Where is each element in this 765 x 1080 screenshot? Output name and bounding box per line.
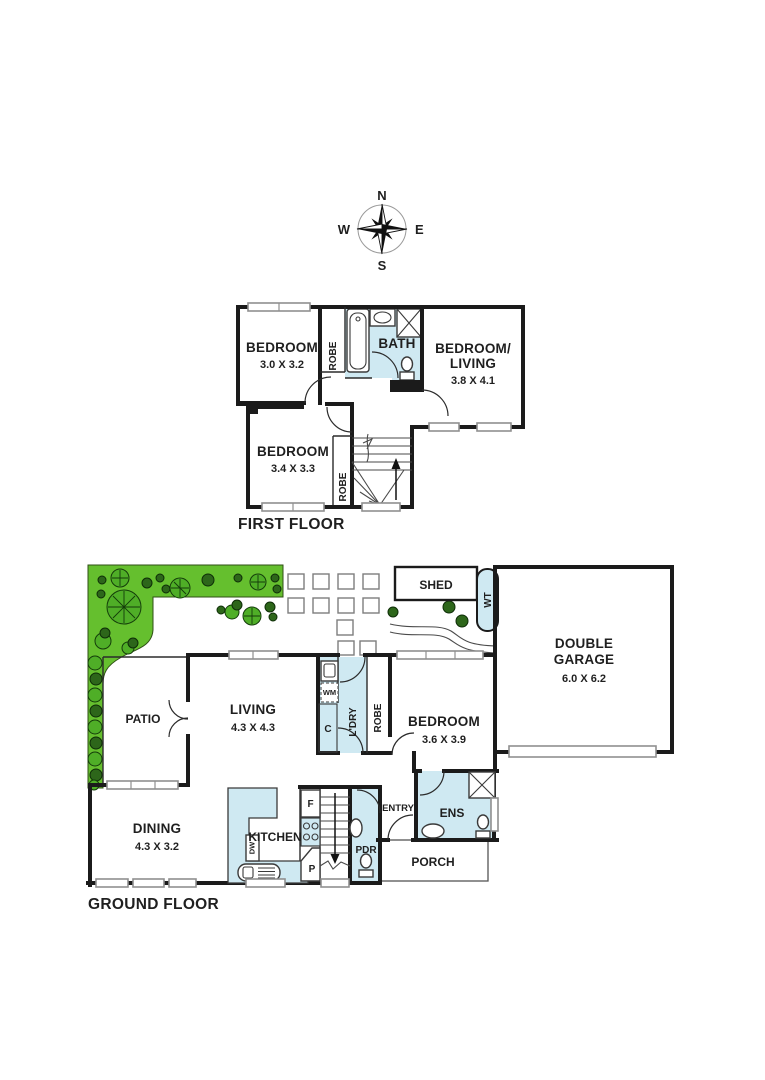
living-label: LIVING (230, 702, 276, 717)
door-arc-patio-right (169, 718, 188, 737)
dining-dims: 4.3 X 3.2 (135, 841, 179, 853)
bedroom1-label: BEDROOM (246, 340, 318, 355)
bedroom-living-dims: 3.8 X 4.1 (451, 375, 495, 387)
robe-label: ROBE (373, 703, 384, 732)
bedroom-dims: 3.6 X 3.9 (422, 734, 466, 746)
paver-stones (288, 574, 379, 655)
living-dims: 4.3 X 4.3 (231, 722, 275, 734)
washing-machine-icon: WM (321, 683, 338, 702)
floorplan-page: N E S W (0, 0, 765, 1080)
bedroom-label: BEDROOM (408, 714, 480, 729)
ens-window (491, 798, 498, 831)
stairs-down-arrow (331, 854, 340, 864)
bathtub-icon (347, 309, 369, 372)
floorplan-image: N E S W (0, 0, 765, 1080)
pdr-toilet-icon (359, 854, 373, 877)
ground-floor-plan: SHED WT DOUBLE GARAGE 6.0 X 6.2 (88, 565, 672, 913)
garage-label-2: GARAGE (554, 652, 614, 667)
door-arc-bedroom-living (422, 390, 448, 416)
bedroom1-dims: 3.0 X 3.2 (260, 359, 304, 371)
fridge-label: F (307, 799, 313, 810)
shower-icon (397, 309, 421, 337)
bedroom2-label: BEDROOM (257, 444, 329, 459)
bedroom-living-label-2: LIVING (450, 356, 496, 371)
laundry-trough-icon (321, 661, 338, 681)
porch-label: PORCH (411, 855, 454, 869)
dining-label: DINING (133, 821, 181, 836)
door-arc-front-door (388, 815, 413, 840)
robe2-label: ROBE (338, 472, 349, 501)
ground-floor-title: GROUND FLOOR (88, 896, 219, 913)
kitchen-label: KITCHEN (248, 830, 301, 844)
ens-shower-icon (469, 772, 495, 798)
toilet-icon (400, 357, 414, 380)
door-arc-patio-left (169, 700, 188, 719)
pdr-label: PDR (355, 845, 377, 856)
first-floor-title: FIRST FLOOR (238, 516, 345, 533)
laundry-label: L'DRY (348, 707, 359, 737)
garage-label-1: DOUBLE (555, 636, 613, 651)
first-floor-plan: BEDROOM 3.0 X 3.2 ROBE BATH BEDROOM/ LIV… (238, 303, 523, 533)
pdr-basin-icon (350, 819, 362, 837)
water-tank-label: WT (483, 592, 494, 608)
robe1-label: ROBE (328, 341, 339, 370)
pantry-icon: P (301, 848, 320, 881)
stairs-up-arrow (392, 458, 401, 469)
entry-label: ENTRY (382, 803, 415, 814)
laundry-cupboard-label: C (324, 724, 331, 735)
garage-dims: 6.0 X 6.2 (562, 673, 606, 685)
wall-block (390, 380, 422, 392)
washing-machine-label: WM (323, 688, 336, 697)
bath-vanity-icon (370, 309, 395, 326)
compass-west-label: W (338, 222, 351, 237)
compass-rose-icon: N E S W (338, 188, 424, 273)
ens-toilet-icon (476, 815, 490, 838)
ens-label: ENS (440, 806, 465, 820)
pantry-label: P (309, 864, 316, 875)
bedroom-living-label-1: BEDROOM/ (435, 341, 511, 356)
bath-label: BATH (378, 336, 415, 351)
compass-north-label: N (377, 188, 386, 203)
cooktop-icon (301, 818, 320, 846)
fridge-icon: F (301, 790, 320, 817)
compass-east-label: E (415, 222, 424, 237)
ens-vanity-icon (422, 824, 444, 838)
patio-label: PATIO (126, 712, 161, 726)
door-arc-bedroom2 (327, 407, 352, 432)
shed-label: SHED (419, 578, 453, 592)
stairs-down (320, 793, 350, 869)
compass-south-label: S (378, 258, 387, 273)
door-arc-bedroom (392, 733, 414, 755)
stairs-up (352, 434, 412, 505)
bedroom2-dims: 3.4 X 3.3 (271, 463, 315, 475)
garage-door (509, 746, 656, 757)
